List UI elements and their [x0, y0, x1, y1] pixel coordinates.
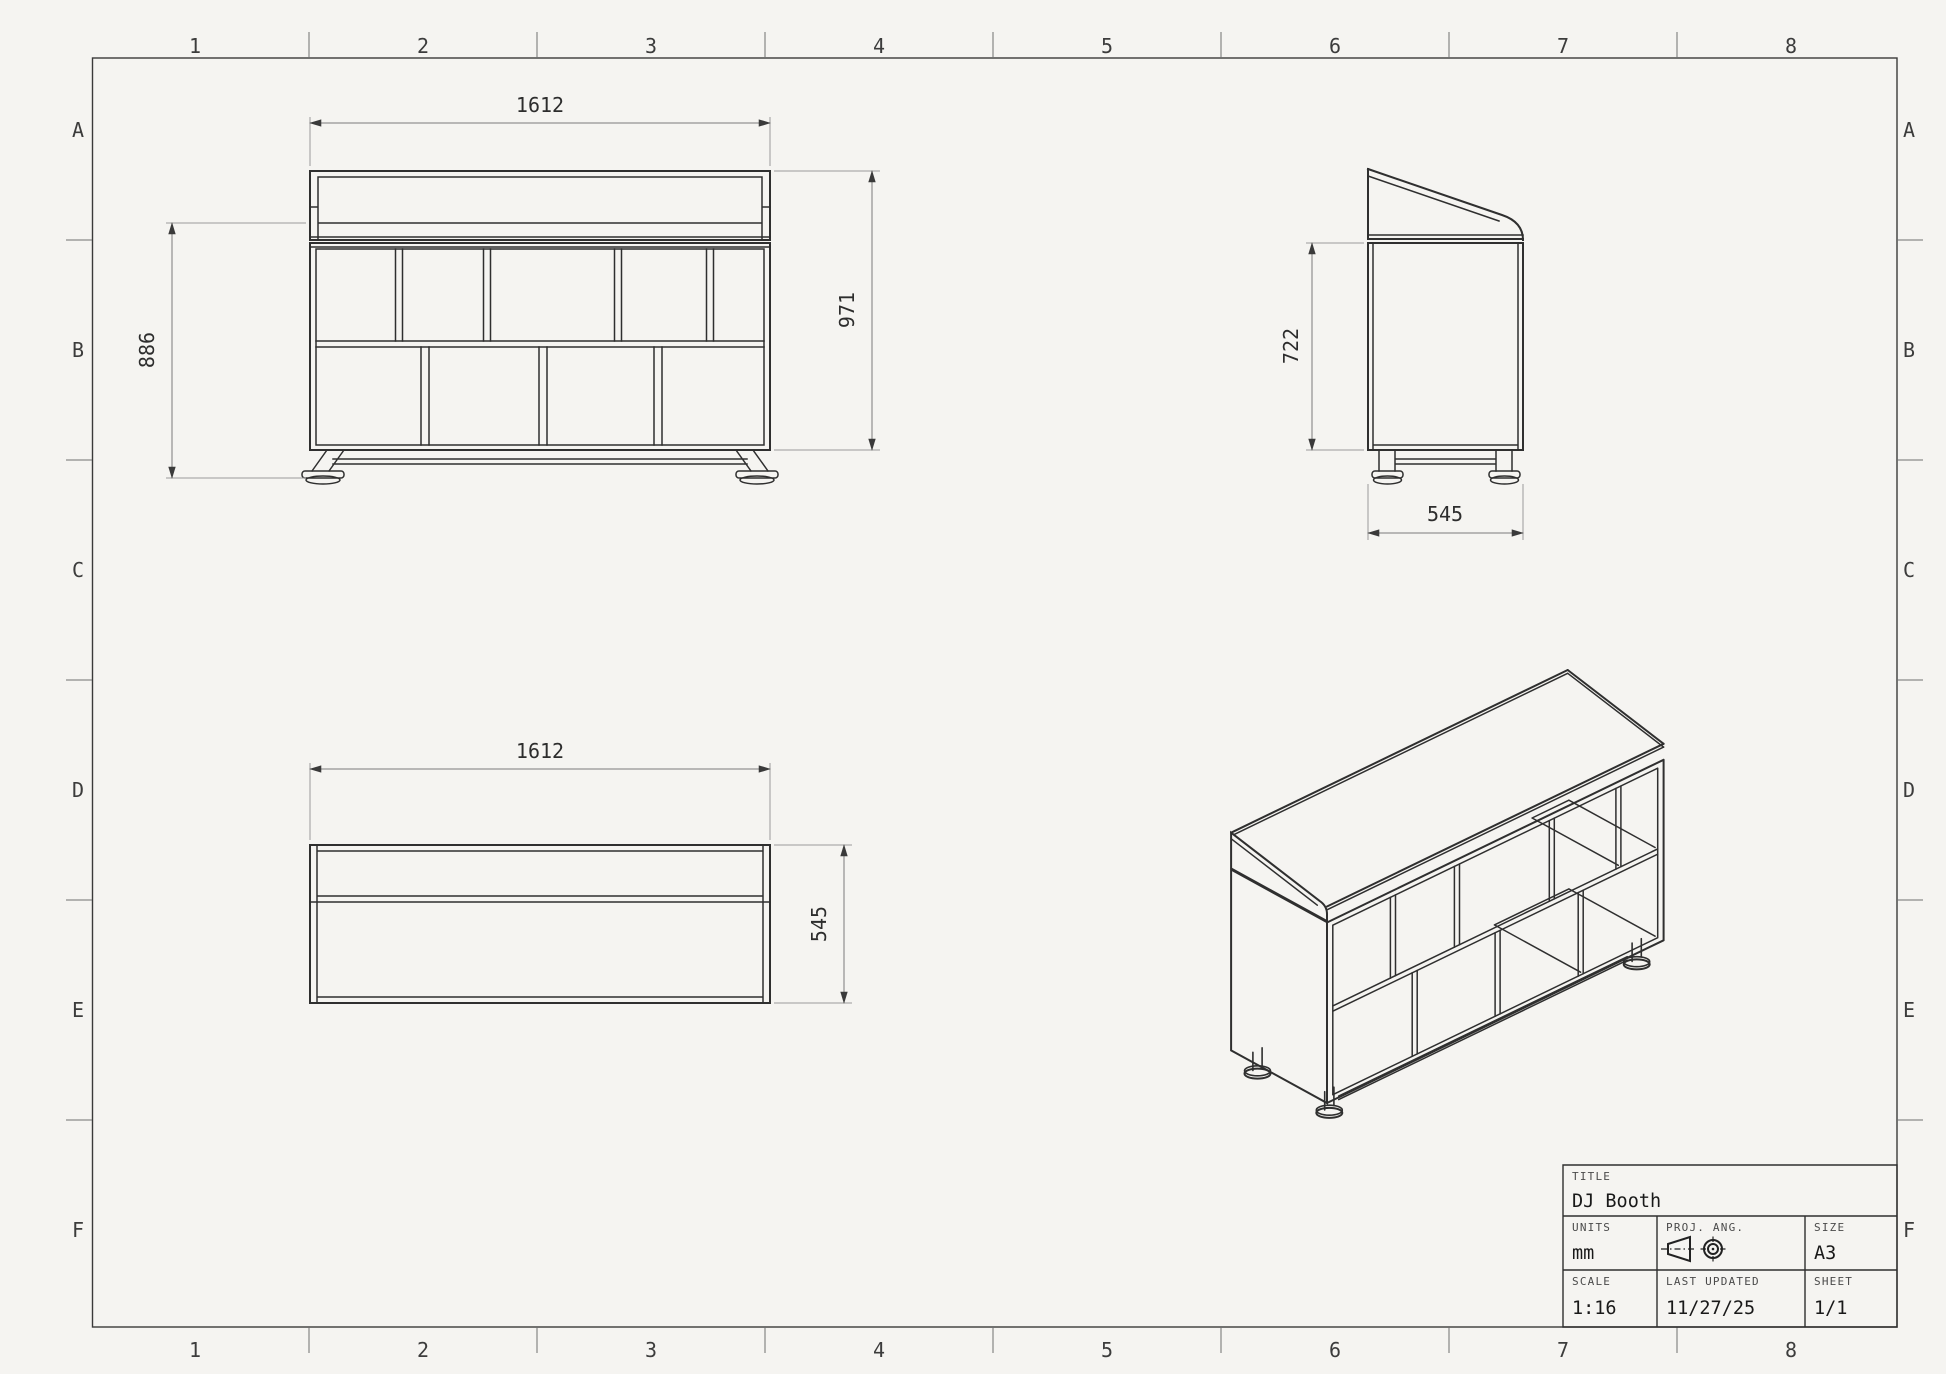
grid-column-label: 5 [1101, 34, 1113, 58]
grid-row-label: E [72, 998, 84, 1022]
grid-column-label: 4 [873, 1338, 885, 1362]
grid-column-label: 6 [1329, 34, 1341, 58]
last-updated-value: 11/27/25 [1666, 1298, 1755, 1319]
dimension-label-front-width: 1612 [516, 93, 564, 117]
grid-row-label: F [72, 1218, 84, 1242]
scale-value: 1:16 [1572, 1298, 1617, 1319]
grid-column-label: 2 [417, 34, 429, 58]
grid-row-label: A [1903, 118, 1915, 142]
dimension-label-side-depth: 545 [1427, 502, 1463, 526]
size-label: SIZE [1814, 1221, 1845, 1234]
drawing-canvas: 1122334455667788AABBCCDDEEFF 1612 886 97… [0, 0, 1946, 1374]
grid-column-label: 2 [417, 1338, 429, 1362]
sheet-background [0, 0, 1946, 1374]
grid-column-label: 7 [1557, 1338, 1569, 1362]
grid-row-label: B [72, 338, 84, 362]
grid-column-label: 1 [189, 34, 201, 58]
projection-angle-label: PROJ. ANG. [1666, 1221, 1744, 1234]
title-label: TITLE [1572, 1170, 1611, 1183]
grid-row-label: C [1903, 558, 1915, 582]
dimension-label-side-body-height: 722 [1279, 328, 1303, 364]
grid-row-label: F [1903, 1218, 1915, 1242]
drawing-sheet: 1122334455667788AABBCCDDEEFF 1612 886 97… [0, 0, 1946, 1374]
grid-column-label: 8 [1785, 34, 1797, 58]
grid-column-label: 6 [1329, 1338, 1341, 1362]
dimension-label-front-overall-height: 971 [835, 292, 859, 328]
grid-row-label: C [72, 558, 84, 582]
grid-column-label: 5 [1101, 1338, 1113, 1362]
last-updated-label: LAST UPDATED [1666, 1275, 1760, 1288]
grid-column-label: 8 [1785, 1338, 1797, 1362]
grid-column-label: 1 [189, 1338, 201, 1362]
dimension-label-top-width: 1612 [516, 739, 564, 763]
grid-column-label: 3 [645, 34, 657, 58]
size-value: A3 [1814, 1243, 1836, 1264]
scale-label: SCALE [1572, 1275, 1611, 1288]
grid-row-label: B [1903, 338, 1915, 362]
dimension-label-front-counter-height: 886 [135, 332, 159, 368]
sheet-label: SHEET [1814, 1275, 1853, 1288]
sheet-value: 1/1 [1814, 1298, 1847, 1319]
grid-row-label: A [72, 118, 84, 142]
grid-row-label: D [72, 778, 84, 802]
grid-row-label: D [1903, 778, 1915, 802]
grid-column-label: 3 [645, 1338, 657, 1362]
units-label: UNITS [1572, 1221, 1611, 1234]
grid-column-label: 7 [1557, 34, 1569, 58]
units-value: mm [1572, 1243, 1594, 1264]
dimension-label-top-depth: 545 [807, 906, 831, 942]
drawing-title: DJ Booth [1572, 1191, 1661, 1212]
grid-column-label: 4 [873, 34, 885, 58]
grid-row-label: E [1903, 998, 1915, 1022]
